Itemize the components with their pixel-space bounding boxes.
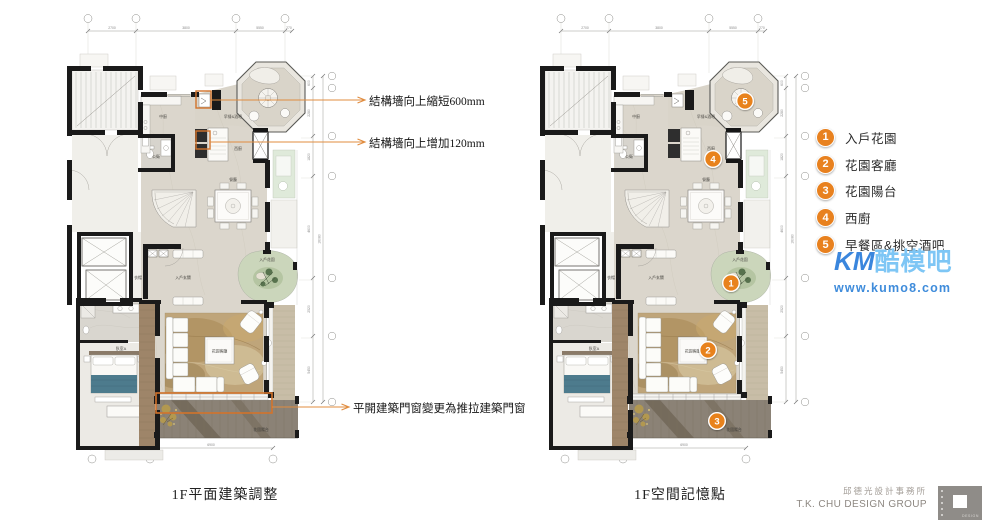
marker-4: 4 <box>705 151 722 168</box>
svg-text:5: 5 <box>742 96 748 107</box>
svg-text:4: 4 <box>710 154 716 165</box>
left-plan-caption: 1F平面建築調整 <box>140 484 310 504</box>
legend-number-badge: 5 <box>816 235 835 254</box>
legend-item-label: 入戶花園 <box>845 128 897 147</box>
firm-logo-text: DESIGN <box>962 514 979 518</box>
legend-item-label: 西廚 <box>845 208 871 227</box>
legend-number-badge: 2 <box>816 155 835 174</box>
watermark-brand-prefix: KM <box>834 246 874 276</box>
marker-5: 5 <box>737 93 754 110</box>
legend-item-4: 4 西廚 <box>816 204 945 231</box>
watermark-brand: KM酷模吧 <box>834 242 952 278</box>
legend-item-3: 3 花園陽台 <box>816 178 945 205</box>
legend-item-1: 1 入戶花園 <box>816 124 945 151</box>
annotation-note-3: 平開建築門窗變更為推拉建築門窗 <box>353 400 526 416</box>
svg-text:1: 1 <box>728 278 734 289</box>
legend-item-2: 2 花園客廳 <box>816 151 945 178</box>
marker-2: 2 <box>700 342 717 359</box>
watermark: KM酷模吧 www.kumo8.com <box>834 242 952 295</box>
svg-text:3: 3 <box>714 416 719 427</box>
firm-logo-dots <box>941 490 943 516</box>
firm-logo-square <box>953 495 967 508</box>
legend-item-label: 花園陽台 <box>845 181 897 200</box>
firm-logo: DESIGN <box>938 486 982 520</box>
right-plan-caption: 1F空間記憶點 <box>595 484 765 504</box>
marker-3: 3 <box>709 413 726 430</box>
legend-number-badge: 3 <box>816 181 835 200</box>
firm-name-cn: 邱德光設計事務所 <box>760 485 927 497</box>
watermark-brand-suffix: 酷模吧 <box>874 248 952 276</box>
right-floor-plan <box>540 15 809 464</box>
firm-name-en: T.K. CHU DESIGN GROUP <box>760 499 927 510</box>
legend-number-badge: 1 <box>816 128 835 147</box>
space-legend: 1 入戶花園 2 花園客廳 3 花園陽台 4 西廚 5 早餐區&挑空酒吧 <box>816 124 945 258</box>
presentation-slide: 2700 3800 5550 270 <box>0 0 1000 526</box>
legend-item-label: 花園客廳 <box>845 155 897 174</box>
watermark-url: www.kumo8.com <box>834 281 952 295</box>
design-firm-block: 邱德光設計事務所 T.K. CHU DESIGN GROUP <box>760 485 927 510</box>
svg-text:2: 2 <box>705 345 710 356</box>
annotation-note-2: 結構墻向上增加120mm <box>369 135 485 151</box>
marker-1: 1 <box>723 275 740 292</box>
legend-number-badge: 4 <box>816 208 835 227</box>
left-floor-plan <box>67 15 336 464</box>
annotation-note-1: 結構墻向上縮短600mm <box>369 93 485 109</box>
